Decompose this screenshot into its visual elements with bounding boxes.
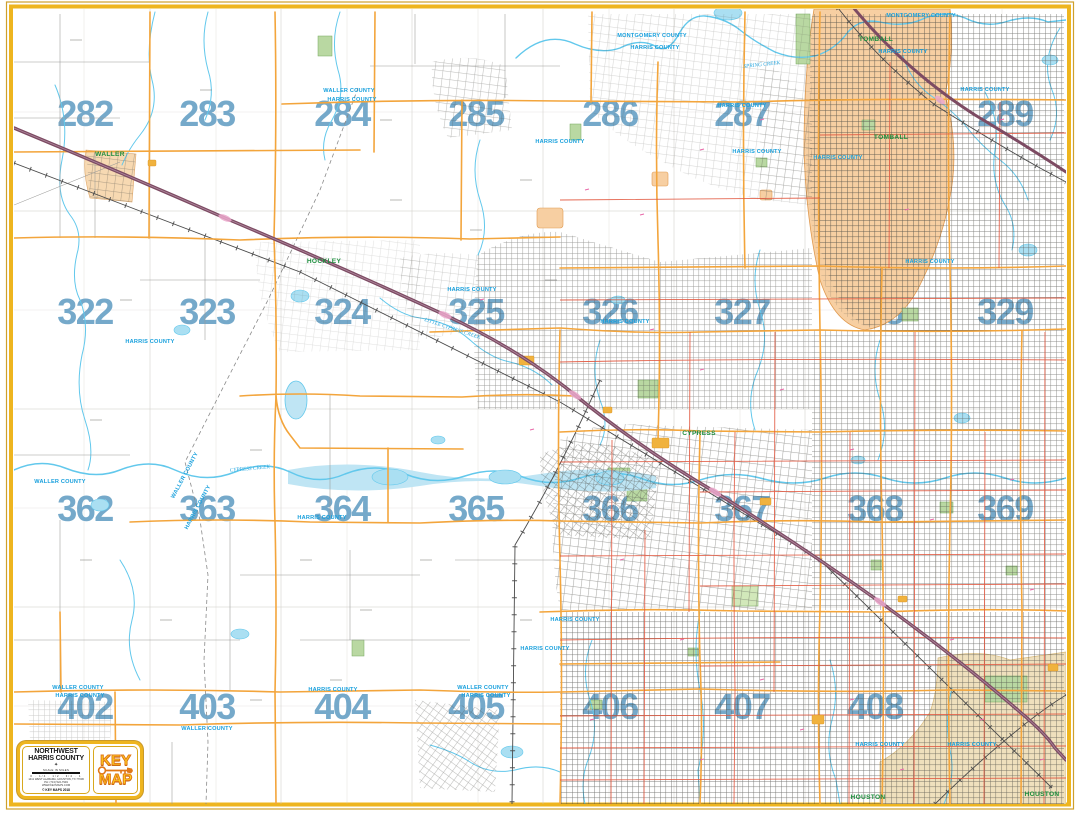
town-label: WALLER <box>95 151 125 158</box>
legend-box: NORTHWEST HARRIS COUNTY ✦ SCALE IN MILES… <box>17 741 143 799</box>
town-label: HOCKLEY <box>307 258 342 265</box>
town-label: TOMBALL <box>874 134 908 141</box>
county-label: HARRIS COUNTY <box>960 87 1009 93</box>
county-label: HARRIS COUNTY <box>327 97 376 103</box>
keymap-page: 2822832842852862872882893223233243253263… <box>0 0 1080 817</box>
town-label: CYPRESS <box>682 430 716 437</box>
grid-cell-number: 282 <box>57 93 113 134</box>
county-label: WALLER COUNTY <box>52 685 103 691</box>
county-label: WALLER COUNTY <box>457 685 508 691</box>
county-label: HARRIS COUNTY <box>535 139 584 145</box>
county-label: HARRIS COUNTY <box>308 687 357 693</box>
county-label: HARRIS COUNTY <box>947 742 996 748</box>
county-label: HARRIS COUNTY <box>125 339 174 345</box>
legend-info-panel: NORTHWEST HARRIS COUNTY ✦ SCALE IN MILES… <box>22 746 90 794</box>
publisher-website: WWW.KEYMAPS.COM <box>42 784 70 787</box>
county-label: HARRIS COUNTY <box>550 617 599 623</box>
county-label: HARRIS COUNTY <box>630 45 679 51</box>
key-map-logo: KEY MAP <box>93 746 138 794</box>
county-label: HARRIS COUNTY <box>813 155 862 161</box>
county-label: WALLER COUNTY <box>181 726 232 732</box>
legend-region-line1: NORTHWEST <box>34 748 77 755</box>
county-label: HARRIS COUNTY <box>55 693 104 699</box>
county-label: MONTGOMERY COUNTY <box>617 33 687 39</box>
county-label: HARRIS COUNTY <box>447 287 496 293</box>
county-label: HARRIS COUNTY <box>297 515 346 521</box>
town-label: TOMBALL <box>859 36 893 43</box>
county-label: HARRIS COUNTY <box>878 49 927 55</box>
county-label: HARRIS COUNTY <box>520 646 569 652</box>
logo-word-map: MAP <box>99 774 132 786</box>
county-label: HARRIS COUNTY <box>732 149 781 155</box>
county-label: MONTGOMERY COUNTY <box>886 13 956 19</box>
county-label: HARRIS COUNTY <box>855 742 904 748</box>
scale-title: SCALE IN MILES <box>43 768 69 772</box>
town-label: HOUSTON <box>1025 791 1060 798</box>
county-label: HARRIS COUNTY <box>461 693 510 699</box>
town-label: HOUSTON <box>851 794 886 801</box>
county-label: WALLER COUNTY <box>323 88 374 94</box>
county-label: HARRIS COUNTY <box>717 103 766 109</box>
grid-cell-number: 323 <box>179 291 235 332</box>
county-label: HARRIS COUNTY <box>600 319 649 325</box>
copyright-line: © KEY MAPS 2018 <box>42 788 70 792</box>
county-label: WALLER COUNTY <box>34 479 85 485</box>
grid-cell-number: 365 <box>448 488 505 529</box>
county-label: HARRIS COUNTY <box>905 259 954 265</box>
legend-region-line2: HARRIS COUNTY <box>28 755 84 762</box>
map-canvas: 2822832842852862872882893223233243253263… <box>0 0 1080 817</box>
